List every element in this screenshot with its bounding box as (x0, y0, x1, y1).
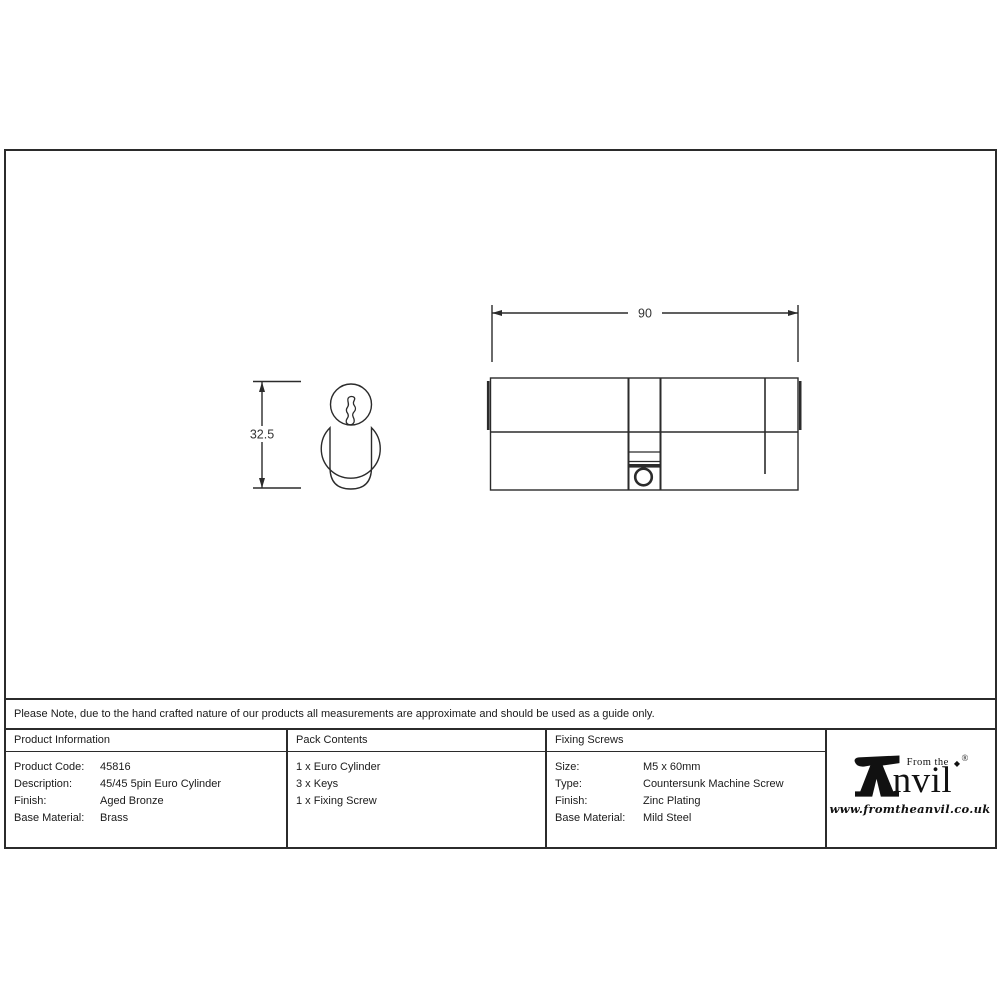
table-row: Finish: Aged Bronze (14, 793, 286, 810)
row-label: Product Code: (14, 759, 100, 776)
table-row: Base Material: Brass (14, 810, 286, 827)
row-value: Brass (100, 810, 286, 827)
measurement-note-text: Please Note, due to the hand crafted nat… (14, 708, 655, 720)
list-item: 3 x Keys (296, 776, 545, 793)
from-the-anvil-logo: From the ◆ nvil ® www.fromtheanvil.co.uk (829, 755, 990, 816)
fixing-screws-column: Fixing Screws Size: M5 x 60mm Type: Coun… (547, 730, 827, 847)
list-item: 1 x Euro Cylinder (296, 759, 545, 776)
table-row: Description: 45/45 5pin Euro Cylinder (14, 776, 286, 793)
list-item: 1 x Fixing Screw (296, 793, 545, 810)
product-information-column: Product Information Product Code: 45816 … (6, 730, 288, 847)
table-row: Size: M5 x 60mm (555, 759, 825, 776)
table-row: Product Code: 45816 (14, 759, 286, 776)
row-label: Type: (555, 776, 643, 793)
product-information-header: Product Information (6, 730, 286, 752)
table-row: Base Material: Mild Steel (555, 810, 825, 827)
row-label: Base Material: (14, 810, 100, 827)
row-value: Aged Bronze (100, 793, 286, 810)
spec-table: Product Information Product Code: 45816 … (6, 730, 995, 847)
brand-cell: From the ◆ nvil ® www.fromtheanvil.co.uk (827, 730, 993, 847)
row-label: Finish: (555, 793, 643, 810)
row-label: Size: (555, 759, 643, 776)
table-row: Type: Countersunk Machine Screw (555, 776, 825, 793)
registered-trademark-icon: ® (962, 754, 969, 763)
row-value: Countersunk Machine Screw (643, 776, 825, 793)
diamond-dot-icon: ◆ (954, 760, 961, 768)
row-label: Finish: (14, 793, 100, 810)
row-label: Base Material: (555, 810, 643, 827)
spec-sheet-frame: Please Note, due to the hand crafted nat… (4, 149, 997, 849)
row-value: 45/45 5pin Euro Cylinder (100, 776, 286, 793)
brand-website: www.fromtheanvil.co.uk (829, 802, 990, 816)
measurement-note: Please Note, due to the hand crafted nat… (6, 700, 995, 730)
row-value: 45816 (100, 759, 286, 776)
pack-contents-header: Pack Contents (288, 730, 545, 752)
technical-drawing-area (6, 151, 995, 700)
row-value: Mild Steel (643, 810, 825, 827)
row-label: Description: (14, 776, 100, 793)
pack-contents-column: Pack Contents 1 x Euro Cylinder 3 x Keys… (288, 730, 547, 847)
fixing-screws-header: Fixing Screws (547, 730, 825, 752)
table-row: Finish: Zinc Plating (555, 793, 825, 810)
row-value: Zinc Plating (643, 793, 825, 810)
logo-wordmark-rest: nvil (893, 768, 961, 795)
row-value: M5 x 60mm (643, 759, 825, 776)
